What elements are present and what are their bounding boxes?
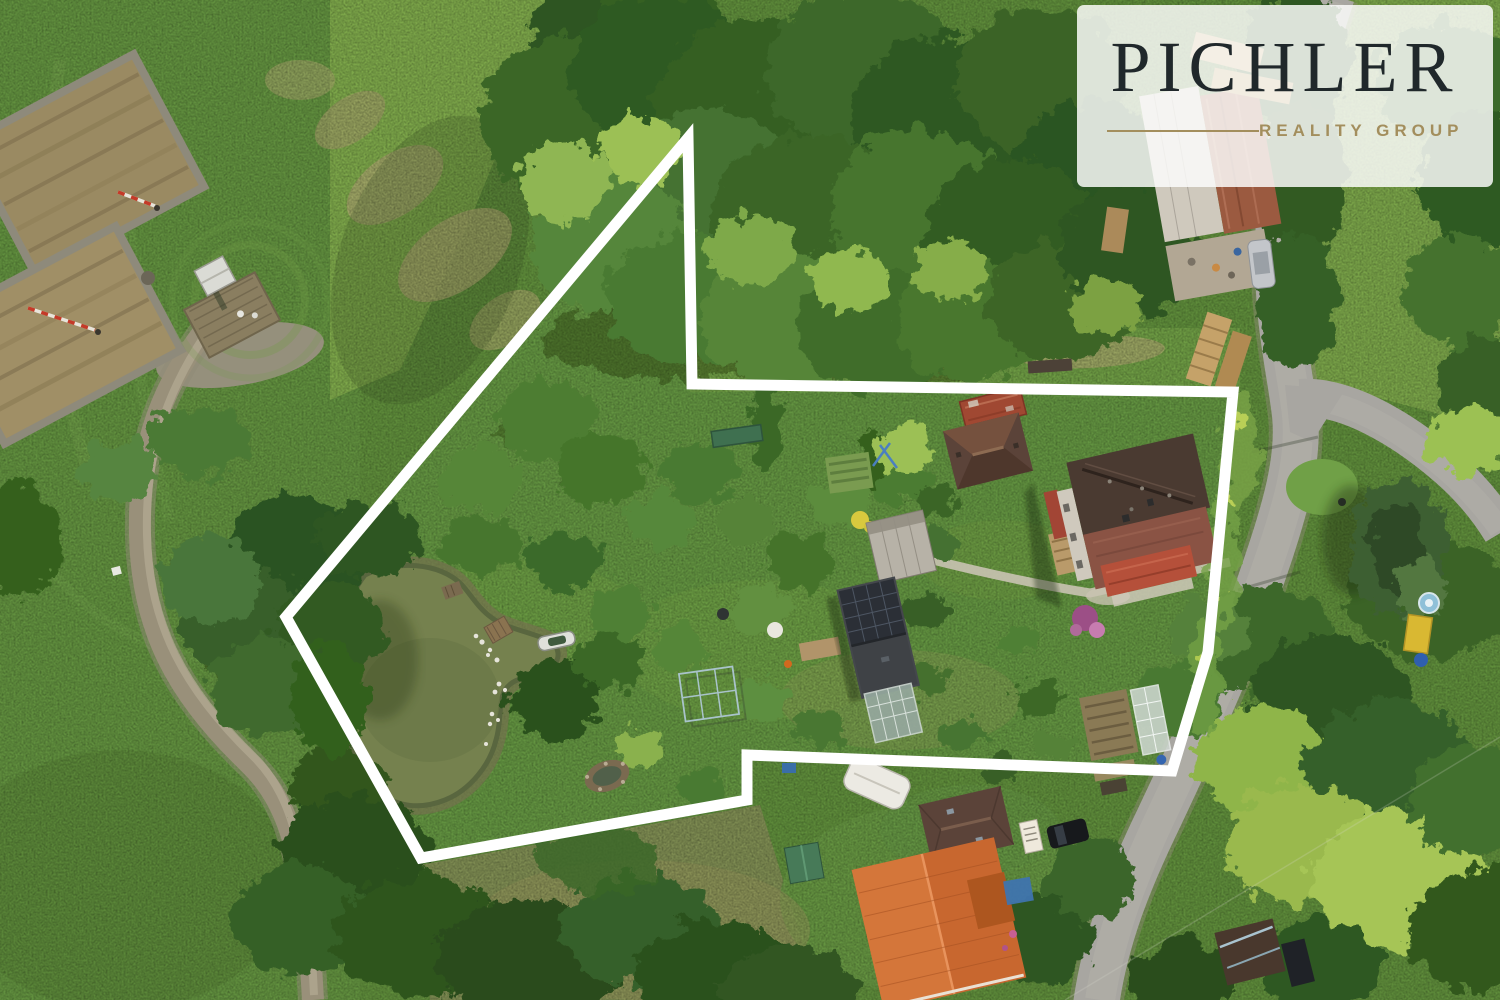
pink-toy xyxy=(1009,930,1017,938)
green-shed xyxy=(784,842,824,883)
brand-tagline: REALITY GROUP xyxy=(1259,121,1463,141)
brand-logo-badge: PICHLER REALITY GROUP xyxy=(1077,5,1493,187)
aerial-photograph: PICHLER REALITY GROUP xyxy=(0,0,1500,1000)
blue-box xyxy=(782,763,796,773)
brand-name: PICHLER xyxy=(1107,29,1463,107)
blue-tarp xyxy=(1003,877,1034,905)
pink-toy xyxy=(1002,945,1008,951)
brand-tag-row: REALITY GROUP xyxy=(1107,121,1463,141)
well-cover xyxy=(141,271,155,285)
greenhouse xyxy=(864,683,922,743)
brand-divider-line xyxy=(1107,130,1259,132)
blue-barrel xyxy=(1414,653,1428,667)
